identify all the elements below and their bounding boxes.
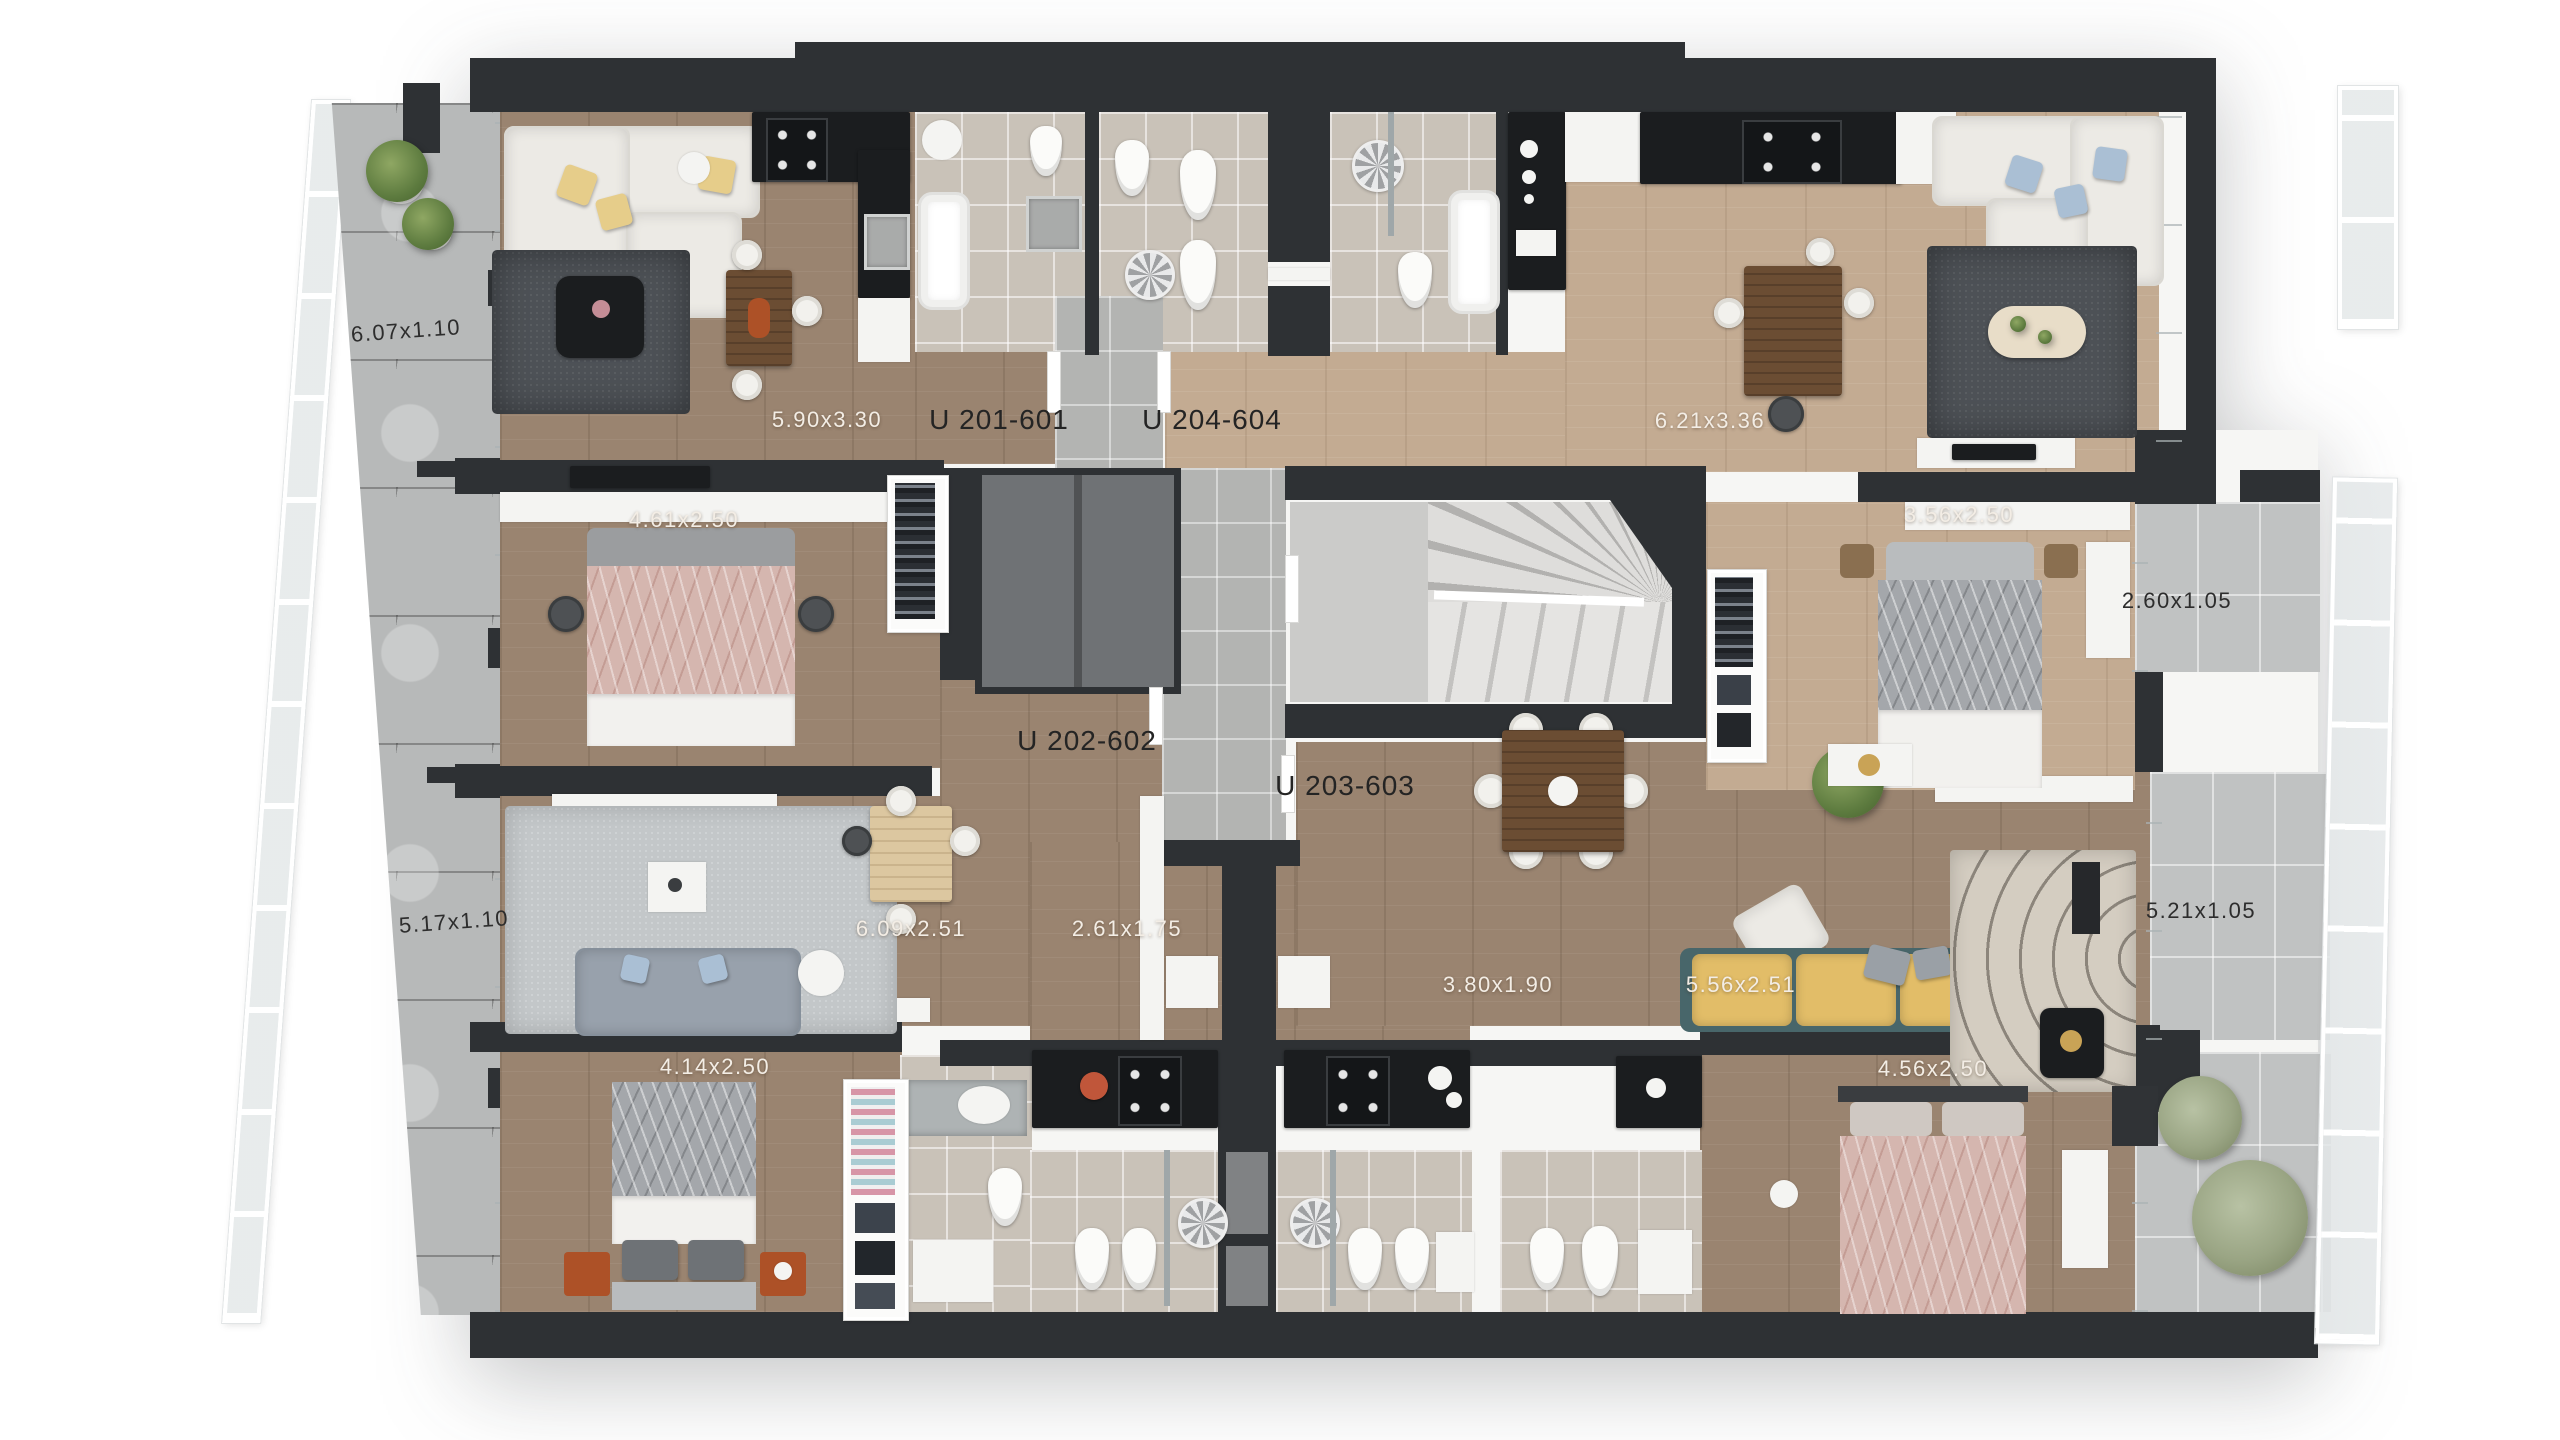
wall-bottom	[470, 1312, 2318, 1358]
wall-u204-bedroom-top	[1858, 472, 2160, 502]
bed-u203-duvet	[1840, 1136, 2026, 1314]
coffee-table-u204	[1988, 306, 2086, 358]
table-decor	[1548, 776, 1578, 806]
wall-balcony-block	[2240, 470, 2320, 502]
side-table-u202	[798, 950, 844, 996]
dim-label-u202-living: 6.09x2.51	[856, 916, 966, 942]
shower-u201	[1026, 196, 1082, 252]
washer	[1638, 1230, 1692, 1294]
bathtub-u201	[918, 192, 970, 310]
storage-u203	[2112, 1086, 2158, 1146]
flower-vase	[592, 300, 610, 318]
unit-label-u203: U 203-603	[1275, 770, 1415, 802]
dining-table-u202	[870, 806, 952, 902]
dining-chair	[950, 826, 980, 856]
dim-label-u204-living: 6.21x3.36	[1655, 408, 1765, 434]
dim-label-u202-bedroom: 4.14x2.50	[660, 1054, 770, 1080]
dim-label-u203-kitchen: 3.80x1.90	[1443, 972, 1553, 998]
elevator-shaft	[975, 468, 1181, 694]
unit-label-u204: U 204-604	[1142, 404, 1282, 436]
balcony-plant	[2158, 1076, 2242, 1160]
balcony-door-upper-right	[2132, 502, 2148, 672]
terrace-plant	[366, 140, 428, 202]
hanging-clothes-colorful	[851, 1087, 895, 1195]
hanging-clothes	[1715, 577, 1753, 667]
dining-chair	[792, 296, 822, 326]
bed-u202-sheet	[612, 1196, 756, 1244]
dining-chair	[1806, 238, 1834, 266]
table-lamp	[774, 1262, 792, 1280]
shower-glass	[1330, 1150, 1336, 1306]
sink-bowl	[1524, 194, 1534, 204]
nightstand-u204	[1840, 544, 1874, 578]
serving-tray	[748, 298, 770, 338]
floor-stair-landing	[1290, 502, 1428, 702]
dresser-u203	[2062, 1150, 2108, 1268]
bath-mirror-u201	[922, 120, 962, 160]
dining-chair	[1714, 298, 1744, 328]
dining-chair	[732, 240, 762, 270]
hanging-clothes	[895, 483, 935, 619]
door-stairwell	[1286, 556, 1298, 622]
stair-straight-flight	[1428, 602, 1672, 702]
wall-right-upper	[2186, 58, 2216, 472]
kitchen-cabinet-u204	[1565, 112, 1641, 182]
dim-label-balcony-right: 5.21x1.05	[2146, 898, 2256, 924]
nightstand-u201	[548, 596, 584, 632]
kitchen-sink-u201	[864, 214, 910, 270]
bowl	[1428, 1066, 1452, 1090]
tv-u204	[1952, 444, 2036, 460]
tv-u201	[570, 466, 710, 488]
gold-decor	[2060, 1030, 2082, 1052]
folded-clothes	[1717, 713, 1751, 747]
nightstand-u204	[2044, 544, 2078, 578]
stove-u201	[766, 118, 828, 182]
shower-head	[1352, 140, 1404, 192]
stove-u203	[1326, 1056, 1390, 1126]
fridge-u201	[858, 298, 910, 362]
unit-label-u202: U 202-602	[1017, 725, 1157, 757]
sink-bowl	[1646, 1078, 1666, 1098]
vanity-counter-u204	[1508, 112, 1566, 290]
stove-u204	[1742, 120, 1842, 184]
stove-u202	[1118, 1056, 1182, 1126]
shower-head	[1125, 250, 1175, 300]
pan	[1080, 1072, 1108, 1100]
dim-label-u203-living: 5.56x2.51	[1686, 972, 1796, 998]
wall-top	[470, 58, 2216, 112]
towel-tray	[1516, 230, 1556, 256]
bed-u204-pillows	[1886, 542, 2034, 582]
wardrobe-u201	[888, 476, 948, 632]
folded-clothes	[855, 1283, 895, 1309]
table-plant	[2010, 316, 2026, 332]
washer	[913, 1240, 993, 1302]
dim-label-u201-bedroom: 4.61x2.50	[629, 507, 739, 533]
railing-right	[2315, 477, 2397, 1344]
pillow	[620, 954, 651, 985]
wall-stair-top	[1285, 466, 1705, 500]
bed-u202-pillow	[622, 1240, 678, 1280]
dim-label-u203-bedroom: 4.56x2.50	[1878, 1056, 1988, 1082]
dining-chair	[886, 786, 916, 816]
bowl	[1446, 1092, 1462, 1108]
parapet-top	[795, 42, 1685, 58]
railing-top-right	[2338, 86, 2398, 329]
sofa-u202	[575, 948, 801, 1036]
terrace-railing-left	[222, 100, 350, 1323]
bed-u201-headboard	[587, 528, 795, 568]
wall-stair-right	[1672, 466, 1706, 738]
unit-label-u201: U 201-601	[929, 404, 1069, 436]
bed-u202-base	[612, 1282, 756, 1310]
shower-head	[1178, 1198, 1228, 1248]
bed-u203-headboard	[1838, 1086, 2028, 1102]
floor-lamp	[1770, 1180, 1798, 1208]
wall-art-rug	[2072, 862, 2100, 934]
dining-table-u204	[1744, 266, 1842, 396]
sink-bowl	[1522, 170, 1536, 184]
shower-glass	[1164, 1150, 1170, 1306]
dishwasher	[1166, 956, 1218, 1008]
table-plant	[2038, 330, 2052, 344]
pillow	[2092, 146, 2128, 182]
folded-clothes	[855, 1241, 895, 1275]
nightstand-u201	[798, 596, 834, 632]
wall-bath-divider	[1085, 112, 1099, 355]
dishwasher	[1278, 956, 1330, 1008]
bed-u203-pillow	[1850, 1102, 1932, 1136]
wall-balcony-block	[2135, 672, 2163, 772]
shaft-panel	[1226, 1152, 1268, 1234]
dim-label-u201-living: 5.90x3.30	[772, 407, 882, 433]
side-table-u201	[678, 152, 710, 184]
gold-lamp	[1858, 754, 1880, 776]
balcony-upper-right-floor	[2135, 502, 2320, 672]
dining-chair	[1844, 288, 1874, 318]
vase	[668, 878, 682, 892]
door-corridor-u201	[1048, 352, 1060, 412]
door-corridor-u204	[1158, 352, 1170, 412]
folded-clothes	[855, 1203, 895, 1233]
bathtub-center	[1448, 190, 1500, 314]
sink-bowl	[1520, 140, 1538, 158]
shower-glass	[1388, 112, 1394, 236]
pillow	[2053, 183, 2089, 219]
wall-units-divider-bottom	[1222, 844, 1276, 1052]
bed-u204-duvet	[1878, 580, 2042, 712]
bed-u201-sheet	[587, 694, 795, 746]
wall-stair-bottom	[1285, 704, 1705, 738]
dim-label-balcony-upper-right: 2.60x1.05	[2122, 588, 2232, 614]
pillow	[1912, 945, 1953, 981]
bed-u201-duvet	[587, 566, 795, 698]
wardrobe-u202	[844, 1080, 908, 1320]
dining-chair	[732, 370, 762, 400]
shaft-center-top2	[1268, 286, 1330, 356]
shaft-panel	[1226, 1246, 1268, 1306]
balcony-plant	[2192, 1160, 2308, 1276]
wall-u201-bedroom-bottom	[470, 766, 932, 796]
shaft-shelf	[1268, 268, 1330, 280]
dim-label-u202-kitchen: 2.61x1.75	[1072, 916, 1182, 942]
dining-chair-dark	[842, 826, 872, 856]
nightstand-u202	[564, 1252, 610, 1296]
terrace-plant	[402, 198, 454, 250]
bed-u203-pillow	[1942, 1102, 2024, 1136]
shaft-center-top	[1268, 112, 1330, 262]
bath-mirror	[958, 1086, 1010, 1124]
bed-u202-pillow	[688, 1240, 744, 1280]
dining-chair-dark	[1768, 396, 1804, 432]
folded-clothes	[1717, 675, 1751, 705]
floor-corridor-upper	[1055, 296, 1163, 482]
dim-label-u204-bedroom: 3.56x2.50	[1904, 502, 2014, 528]
bed-u202-duvet	[612, 1082, 756, 1202]
floor-plan-canvas: 6.07x1.10 5.90x3.30 U 201-601 U 204-604 …	[0, 0, 2560, 1440]
washer	[1436, 1232, 1474, 1292]
wardrobe-u204	[1708, 570, 1766, 762]
